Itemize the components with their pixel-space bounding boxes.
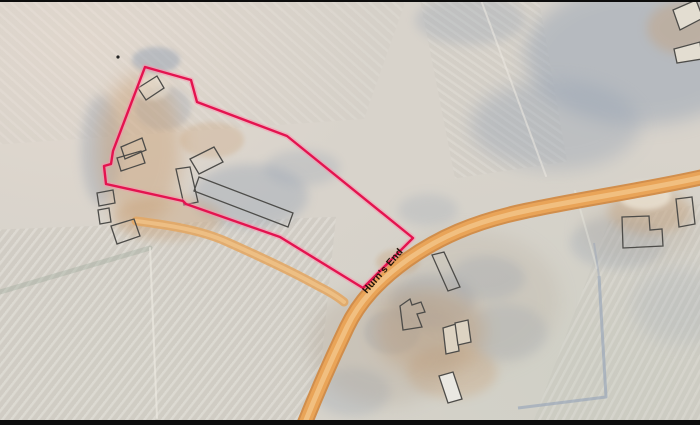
woodland-top-right (415, 0, 525, 45)
farm-ground (180, 122, 244, 158)
field-boundary-line (0, 248, 150, 292)
image-border-top (0, 0, 700, 2)
image-border-bottom (0, 420, 700, 425)
woodland-top-right (470, 80, 640, 170)
field-boundary-line (150, 248, 157, 418)
tree-shadow (398, 194, 458, 226)
building-outline (98, 208, 111, 224)
map-marks-layer (116, 55, 119, 58)
aerial-map-view: Hurn's End (0, 0, 700, 425)
aerial-map (0, 0, 700, 425)
tree-shadow (632, 267, 700, 343)
terrain-layer (81, 0, 700, 416)
building-outline (455, 320, 471, 345)
map-dot (116, 55, 119, 58)
